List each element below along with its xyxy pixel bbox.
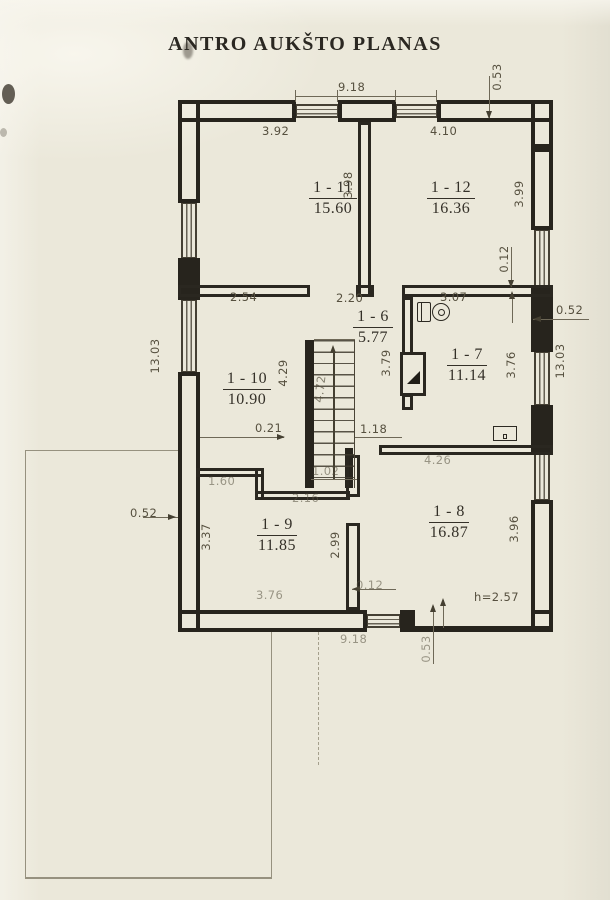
dim-room8-depth: 3.96 [507, 510, 521, 548]
dim-line-right-wall [533, 319, 589, 320]
wall-room8-top [379, 445, 553, 455]
wall-right-1 [531, 100, 553, 148]
dim-seg-1-18: 1.18 [360, 422, 387, 436]
toilet-drain-icon [438, 309, 445, 316]
room-number: 1 - 10 [223, 370, 271, 390]
dim-right-total: 13.03 [553, 342, 567, 380]
toilet-cistern-divider-icon [421, 302, 422, 322]
vent-triangle-icon [407, 371, 420, 384]
room-area: 16.36 [415, 200, 487, 218]
dim-arrow [486, 111, 492, 119]
scan-smudge [2, 84, 15, 104]
dim-arrow [509, 291, 515, 299]
dim-tick [295, 90, 296, 102]
dim-line-top [296, 96, 437, 97]
window-top-1 [296, 104, 338, 118]
room-area: 15.60 [297, 200, 369, 218]
dim-seg-2-99: 2.99 [328, 526, 342, 564]
faint-page-left-line [25, 450, 26, 878]
room-area: 10.90 [211, 391, 283, 409]
wall-right-2 [531, 148, 553, 230]
dim-seg-2-16: 2.16 [292, 491, 319, 505]
window-right-2 [534, 352, 550, 405]
axis-dashed-line [318, 632, 319, 765]
dim-arrow [168, 514, 176, 520]
room-area: 11.85 [241, 537, 313, 555]
dim-room7-width: 3.07 [440, 290, 467, 304]
stairs-up-arrow-icon [330, 345, 336, 353]
faint-page-bottom-line [25, 877, 272, 879]
dim-left-wall: 0.52 [130, 506, 157, 520]
dim-room8-width: 4.26 [424, 453, 451, 467]
dim-line-stair-width [311, 479, 357, 480]
dim-hall-depth: 3.79 [379, 344, 393, 382]
wall-bottom-left [178, 610, 367, 632]
wall-bottom-right [531, 610, 553, 632]
dim-room12-depth: 3.99 [512, 175, 526, 213]
room-label-1-8: 1 - 8 16.87 [413, 503, 485, 543]
dim-seg-2-54: 2.54 [230, 290, 257, 304]
toilet-cistern-icon [417, 302, 431, 322]
dim-arrow [430, 604, 436, 612]
room-number: 1 - 8 [429, 503, 469, 523]
dim-bottom-offset: 0.53 [419, 630, 433, 668]
wall-room7-left-b [402, 394, 413, 410]
dim-left-total: 13.03 [148, 337, 162, 375]
faint-page-right-line [271, 632, 272, 878]
dim-seg-1-60: 1.60 [208, 474, 235, 488]
scan-smudge [0, 128, 7, 137]
floor-plan-scan: ANTRO AUKŠTO PLANAS [0, 0, 610, 900]
dim-arrow [440, 598, 446, 606]
dim-tick [436, 90, 437, 102]
dim-tick [395, 90, 396, 102]
room-number: 1 - 6 [353, 308, 393, 328]
window-bottom [367, 614, 400, 628]
dim-top-right-offset: 0.53 [490, 58, 504, 96]
dim-bottom-total: 9.18 [340, 632, 367, 646]
wall-bottom-step [400, 610, 415, 632]
window-left-1 [181, 203, 197, 258]
room-area: 5.77 [337, 329, 409, 347]
wall-top-pier [338, 100, 396, 122]
room-label-1-12: 1 - 12 16.36 [415, 179, 487, 219]
room-label-1-6: 1 - 6 5.77 [337, 308, 409, 348]
faint-page-top-line [25, 450, 178, 451]
room-label-1-10: 1 - 10 10.90 [211, 370, 283, 410]
dim-room12-width: 4.10 [430, 124, 457, 138]
dim-room9-depth: 3.37 [199, 518, 213, 556]
dim-room9-width: 3.76 [256, 588, 283, 602]
room-label-1-9: 1 - 9 11.85 [241, 516, 313, 556]
dim-line-bottom-offset [433, 606, 434, 664]
dim-hall-width: 2.20 [336, 291, 363, 305]
room-number: 1 - 7 [447, 346, 487, 366]
room-number: 1 - 12 [427, 179, 475, 199]
room-area: 11.14 [431, 367, 503, 385]
dim-room11-width: 3.92 [262, 124, 289, 138]
window-right-3 [534, 452, 550, 500]
dim-arrow [508, 280, 514, 288]
dim-top-total: 9.18 [338, 80, 365, 94]
stairs-direction-line [333, 352, 335, 480]
dim-arrow [533, 316, 541, 322]
wall-left-1 [178, 100, 200, 203]
room-label-1-7: 1 - 7 11.14 [431, 346, 503, 386]
dim-right-stub: 0.12 [497, 240, 511, 278]
room-number: 1 - 9 [257, 516, 297, 536]
wall-left-2 [178, 372, 200, 632]
dim-room7-depth: 3.76 [504, 346, 518, 384]
dim-stair-width: 1.02 [312, 464, 339, 478]
dim-seg-0-21: 0.21 [255, 421, 282, 435]
window-right-1 [534, 230, 550, 287]
wall-9-8-lower [346, 523, 360, 610]
window-left-2 [181, 300, 197, 372]
wall-room7-top [402, 285, 553, 297]
page-title: ANTRO AUKŠTO PLANAS [0, 33, 610, 56]
room-label-1-11: 1 - 11 15.60 [297, 179, 369, 219]
dim-right-wall: 0.52 [556, 303, 583, 317]
dim-line-0-21 [200, 437, 284, 438]
sink-drain-icon [503, 434, 507, 439]
window-top-2 [396, 104, 437, 118]
dim-bottom-stub: 0.12 [356, 578, 383, 592]
dim-line-1-18 [355, 437, 402, 438]
room-area: 16.87 [413, 524, 485, 542]
dim-ceiling-height: h=2.57 [474, 590, 519, 604]
room-number: 1 - 11 [309, 179, 357, 199]
